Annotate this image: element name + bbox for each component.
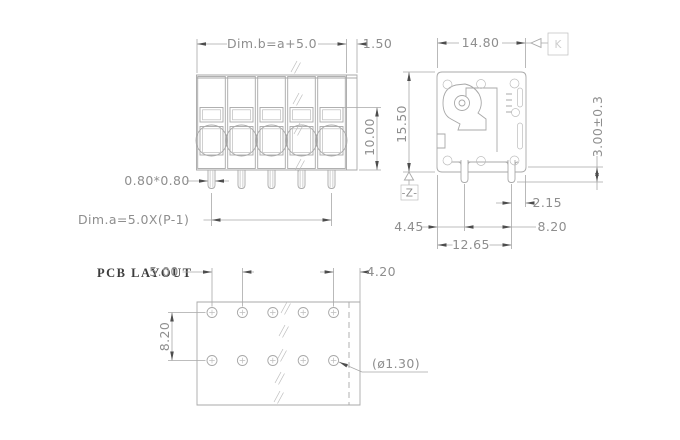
wire-cage-outer — [320, 127, 343, 156]
dim-4-20-label: 4.20 — [367, 264, 396, 279]
break-mark — [277, 349, 287, 362]
dim-3-00-label: 3.00±0.3 — [590, 96, 605, 157]
housing-hole — [512, 109, 520, 117]
dim-10-00-label: 10.00 — [362, 118, 377, 156]
dimension-arrowhead — [375, 108, 379, 117]
wire-slot-inner — [323, 110, 341, 120]
clamp-lever-cam — [443, 84, 486, 130]
solder-pin — [328, 170, 335, 189]
dim-4-45-label: 4.45 — [394, 219, 423, 234]
wire-entry-circle — [196, 125, 227, 156]
dimension-arrowhead — [170, 352, 174, 361]
dimension-arrowhead — [407, 163, 411, 172]
break-mark — [281, 302, 291, 315]
side-dimension-lines — [403, 38, 603, 249]
wire-cage-inner — [203, 129, 221, 153]
dimension-arrowhead — [503, 201, 512, 205]
wire-cage-inner — [233, 129, 251, 153]
solder-pin — [238, 170, 245, 189]
dim-15-50-label: 15.50 — [394, 105, 409, 143]
dimension-arrowhead — [325, 270, 334, 274]
wire-entry-circle — [316, 125, 347, 156]
dimension-arrowhead — [407, 72, 411, 81]
break-mark — [279, 325, 289, 338]
pcb-hole-cross — [209, 358, 215, 364]
wire-slot-inner — [293, 110, 311, 120]
front-view: Dim.b=a+5.0 1.50 10.00 0.80*0.80 Dim.a=5… — [78, 36, 392, 227]
pcb-hole-cross — [270, 310, 276, 316]
lever-pivot-center — [459, 100, 465, 106]
dimension-arrowhead — [438, 41, 447, 45]
dim-14-80-label: 14.80 — [462, 35, 500, 50]
wire-entry-circle — [286, 125, 317, 156]
dimension-arrowhead — [197, 42, 206, 46]
housing-hole — [510, 79, 519, 88]
front-dimension-lines — [187, 39, 382, 226]
dimension-arrowhead — [170, 313, 174, 322]
wire-slot-inner — [233, 110, 251, 120]
pcb-hole-cross — [331, 358, 337, 364]
housing-hole — [443, 80, 452, 89]
wire-cage-inner — [263, 129, 281, 153]
side-view: K -Z- 14.80 15.50 3.00±0.3 2.15 4.45 8.2… — [394, 33, 605, 252]
solder-pin-inner — [300, 170, 303, 188]
pcb-hole-cross — [209, 310, 215, 316]
pcb-hole-cross — [331, 310, 337, 316]
dim-b-label: Dim.b=a+5.0 — [227, 36, 317, 51]
break-mark — [275, 372, 285, 385]
dimension-arrowhead — [338, 42, 347, 46]
projection-flag-label: K — [555, 39, 563, 51]
dim-2-15-label: 2.15 — [533, 195, 562, 210]
dimension-arrowhead — [517, 41, 526, 45]
front-cells — [196, 77, 347, 189]
solder-pin — [208, 170, 215, 189]
housing-hole — [443, 156, 452, 165]
pcb-hole-cross — [270, 358, 276, 364]
lever-pivot-circle — [455, 96, 470, 111]
side-slot — [518, 123, 523, 149]
dim-a-label: Dim.a=5.0X(P-1) — [78, 212, 189, 227]
dimension-arrowhead — [375, 161, 379, 170]
solder-pin-inner — [240, 170, 243, 188]
pcb-dimension-arrows — [170, 270, 369, 367]
datum-z-label: -Z- — [402, 188, 418, 200]
dimension-arrowhead — [203, 270, 212, 274]
pcb-hole-cross — [240, 358, 246, 364]
pcb-hole-cross — [240, 310, 246, 316]
wire-cage-outer — [230, 127, 253, 156]
solder-pin — [298, 170, 305, 189]
pcb-layout-view: PCB LAYOUT 5.00 4.20 8.20 (ø1.30) — [97, 264, 428, 405]
wire-slot-inner — [263, 110, 281, 120]
dimension-arrowhead — [465, 225, 474, 229]
dimension-arrowhead — [338, 360, 348, 367]
solder-pin-inner — [330, 170, 333, 188]
wire-cage-outer — [290, 127, 313, 156]
dimension-arrowhead — [595, 173, 599, 182]
dim-pin-size-label: 0.80*0.80 — [124, 173, 190, 188]
solder-pin — [268, 170, 275, 189]
wire-entry-circle — [226, 125, 257, 156]
side-inner-contour — [437, 88, 512, 162]
wire-cage-inner — [323, 129, 341, 153]
dim-12-65-label: 12.65 — [452, 237, 490, 252]
housing-hole — [477, 80, 486, 89]
pcb-hole-cross — [300, 358, 306, 364]
housing-hole — [477, 157, 486, 166]
dim-8-20-side-label: 8.20 — [538, 219, 567, 234]
dim-5-00-label: 5.00 — [149, 264, 178, 279]
dimension-arrowhead — [199, 179, 208, 183]
dimension-arrowhead — [215, 179, 224, 183]
dimension-arrowhead — [323, 218, 332, 222]
hole-diameter-label: (ø1.30) — [372, 356, 420, 371]
wire-slot-inner — [203, 110, 221, 120]
technical-drawing-page: Dim.b=a+5.0 1.50 10.00 0.80*0.80 Dim.a=5… — [0, 0, 680, 440]
pcb-holes — [207, 308, 339, 366]
break-mark — [293, 93, 303, 106]
wire-cage-outer — [200, 127, 223, 156]
side-slot — [518, 88, 523, 107]
projection-flag-triangle-icon — [531, 39, 541, 48]
solder-pin-inner — [270, 170, 273, 188]
dimension-arrowhead — [212, 218, 221, 222]
datum-triangle-icon — [404, 172, 413, 180]
solder-pin-inner — [210, 170, 213, 188]
dimension-arrowhead — [242, 270, 251, 274]
terminal-block-drawing: Dim.b=a+5.0 1.50 10.00 0.80*0.80 Dim.a=5… — [0, 0, 680, 440]
dimension-arrowhead — [503, 243, 512, 247]
dimension-arrowhead — [438, 243, 447, 247]
break-mark — [274, 391, 284, 404]
wire-cage-outer — [260, 127, 283, 156]
wire-entry-circle — [256, 125, 287, 156]
break-mark — [291, 61, 301, 74]
dim-8-20-pcb-label: 8.20 — [157, 322, 172, 351]
dimension-arrowhead — [429, 225, 438, 229]
dim-1-50-label: 1.50 — [363, 36, 392, 51]
break-line-marks — [274, 302, 291, 404]
dimension-arrowhead — [503, 225, 512, 229]
pcb-hole-cross — [300, 310, 306, 316]
side-pin — [461, 160, 468, 183]
